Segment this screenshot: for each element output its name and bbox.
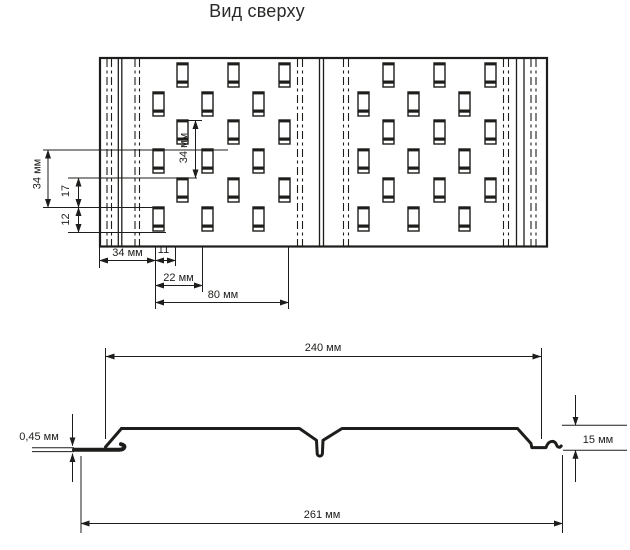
perforation-slot xyxy=(228,63,239,87)
dim-label-overall-width: 261 мм xyxy=(304,509,341,521)
perforation-slot xyxy=(358,207,369,231)
dim-label-slot-height: 12 xyxy=(60,213,72,225)
perforation-slot xyxy=(202,207,213,231)
perforation-slot xyxy=(485,63,496,87)
top-view: 34 мм 17 12 34 мм 34 мм xyxy=(32,58,548,309)
dim-label-pattern-pitch: 80 мм xyxy=(208,289,238,301)
perforation-slot xyxy=(153,149,164,173)
dim-label-column-offset: 22 мм xyxy=(163,272,193,284)
dim-label-metal-thickness: 0,45 мм xyxy=(19,431,59,443)
perforation-slot xyxy=(459,149,470,173)
dim-label-row-offset: 17 xyxy=(60,185,72,197)
dim-label-edge-to-slot: 34 мм xyxy=(112,247,142,259)
perforation-slot xyxy=(202,149,213,173)
perforation-slot xyxy=(408,149,419,173)
perforation-slot xyxy=(253,92,264,116)
perforation-slot xyxy=(383,178,394,202)
top-view-bottom-dimensions: 34 мм 11 22 мм 80 мм xyxy=(100,244,289,309)
profile-left-hook xyxy=(74,444,124,450)
perforation-slot xyxy=(177,63,188,87)
perforation-slot xyxy=(383,120,394,144)
profile-view: 240 мм 261 мм 0,45 мм 15 мм xyxy=(19,342,627,533)
perforation-slot xyxy=(383,63,394,87)
perforation-slot xyxy=(408,207,419,231)
drawing-canvas: Вид сверху xyxy=(0,0,630,550)
perforation-slot xyxy=(434,63,445,87)
perforation-slot xyxy=(253,149,264,173)
perforation-slot xyxy=(228,120,239,144)
perforation-slot xyxy=(202,92,213,116)
perforation-slot xyxy=(408,92,419,116)
perforation-slot xyxy=(358,92,369,116)
technical-drawing: 34 мм 17 12 34 мм 34 мм xyxy=(0,0,630,550)
perforation-slot xyxy=(485,120,496,144)
profile-main-face xyxy=(122,429,562,457)
perforation-slot xyxy=(177,178,188,202)
dim-label-row-pitch-inner: 34 мм xyxy=(178,133,190,163)
dim-label-profile-height: 15 мм xyxy=(583,434,613,446)
perforation-slot xyxy=(153,207,164,231)
perforation-slot xyxy=(434,120,445,144)
perforation-slot xyxy=(253,207,264,231)
dim-working-width: 240 мм xyxy=(106,342,542,439)
perforation-slot xyxy=(485,178,496,202)
dim-profile-height: 15 мм xyxy=(562,395,627,482)
dim-overall-width: 261 мм xyxy=(81,455,563,533)
perforation-slot xyxy=(459,92,470,116)
perforation-slot xyxy=(279,120,290,144)
dim-label-working-width: 240 мм xyxy=(305,342,342,354)
perforation-slot xyxy=(153,92,164,116)
perforation-slot xyxy=(358,149,369,173)
perforation-slot xyxy=(228,178,239,202)
perforation-slot xyxy=(434,178,445,202)
dim-label-row-pitch-left: 34 мм xyxy=(32,159,44,189)
perforation-slot xyxy=(279,178,290,202)
perforation-slot xyxy=(279,63,290,87)
perforation-slot xyxy=(459,207,470,231)
profile-thin-tail xyxy=(32,448,74,452)
dim-label-slot-width: 11 xyxy=(158,244,169,256)
